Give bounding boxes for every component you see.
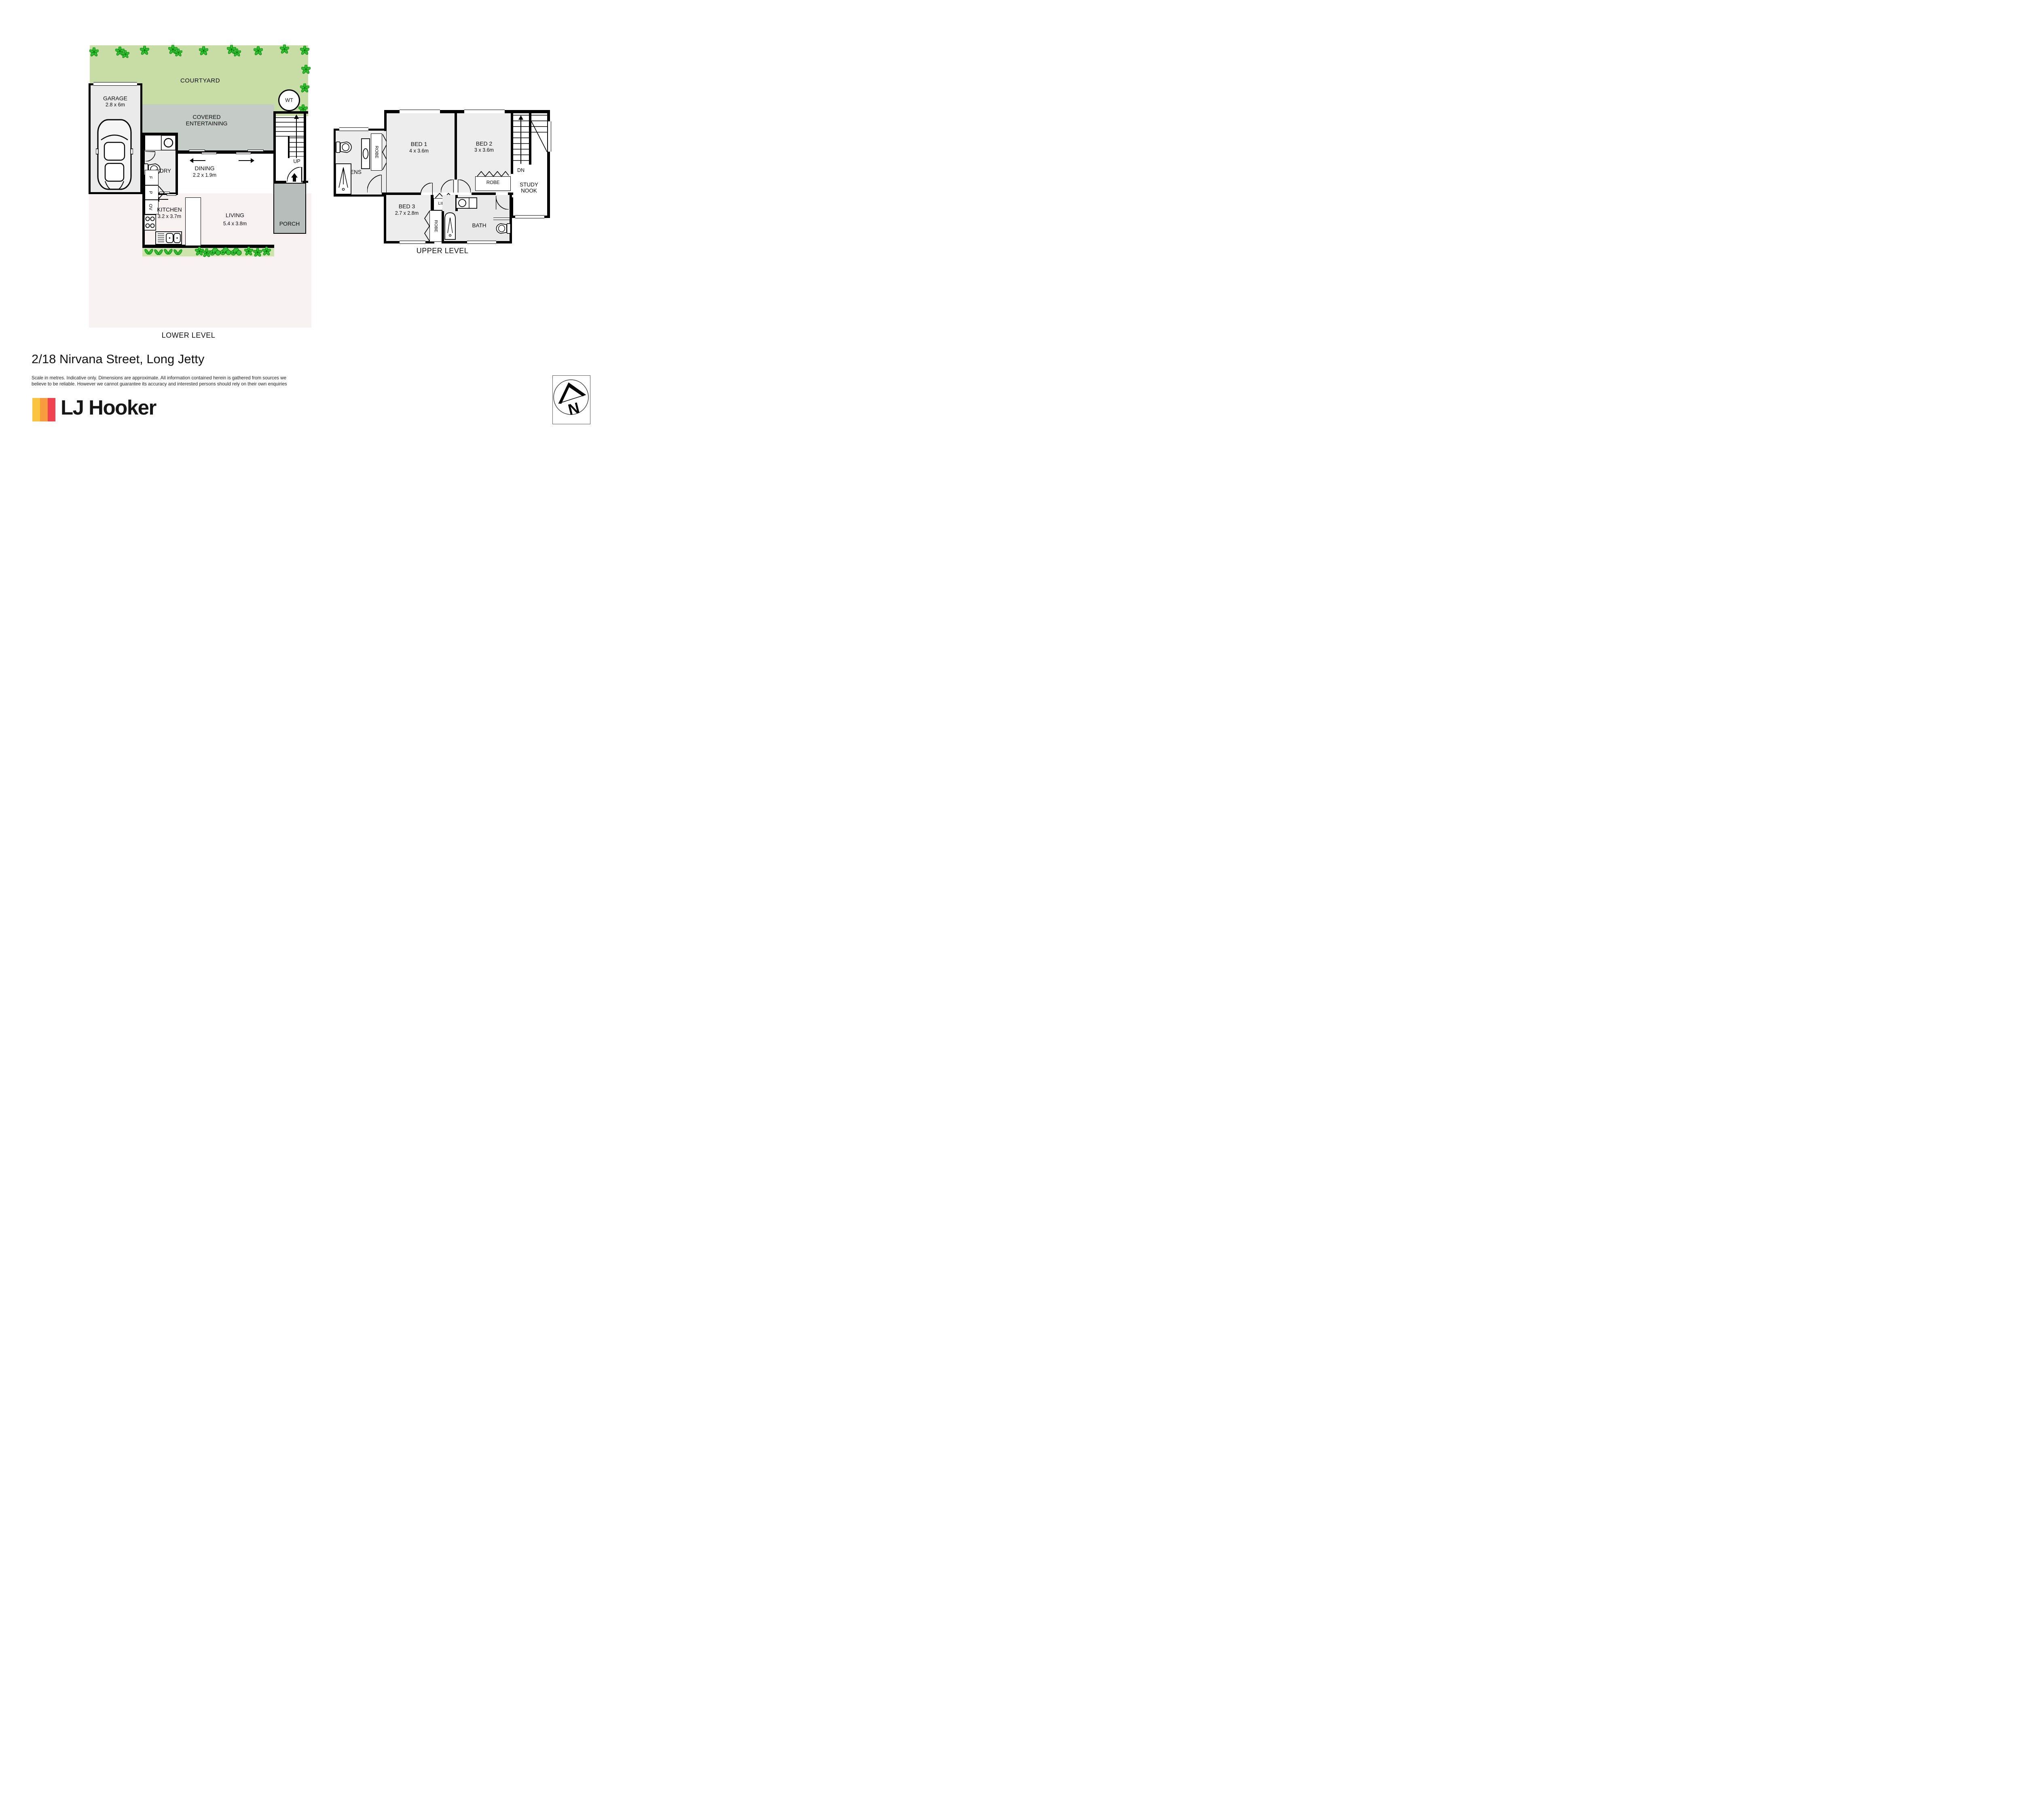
flower-icon: [254, 46, 263, 55]
stair-rail: [520, 116, 521, 164]
logo-stripe-red: [48, 398, 55, 421]
disclaimer-line1: Scale in metres. Indicative only. Dimens…: [32, 375, 286, 381]
stairs-down-label: DN: [517, 168, 525, 173]
robe-bed2-label: ROBE: [486, 180, 500, 185]
window: [515, 215, 544, 218]
floor-plan-upper: ENS ROBE BED 1 4 x 3.6m BED 2: [0, 0, 251, 283]
bed1-dims: 4 x 3.6m: [409, 148, 429, 154]
stairs-up-arrow-icon: [294, 114, 299, 119]
robe-bed3-label: ROBE: [434, 220, 438, 232]
stairs-diagonal: [531, 120, 547, 152]
door-arc: [421, 183, 433, 195]
stairs-up-label: UP: [293, 159, 300, 164]
bed1-label: BED 1: [411, 141, 427, 147]
study-label-1: STUDY: [520, 182, 538, 188]
door-arc: [367, 175, 382, 193]
upper-level-title: UPPER LEVEL: [417, 247, 469, 255]
brand-name: LJ Hooker: [61, 396, 156, 419]
window: [400, 241, 425, 244]
ensuite-label: ENS: [350, 169, 362, 175]
door-arc: [441, 180, 454, 193]
disclaimer-line2: believe to be reliable. However we canno…: [32, 381, 287, 387]
bath-vanity-icon: [456, 197, 477, 209]
north-arrow-icon: N: [553, 376, 590, 423]
stair-divider: [288, 136, 290, 158]
flower-icon: [253, 248, 262, 257]
flower-icon: [300, 83, 309, 93]
wall: [384, 195, 386, 243]
logo-stripe-orange: [40, 398, 48, 421]
wall: [431, 195, 434, 210]
wall: [273, 111, 308, 114]
logo-stripe-yellow: [32, 398, 40, 421]
wall: [510, 195, 512, 243]
flower-icon: [301, 65, 311, 74]
robe-bed1-label: ROBE: [374, 146, 379, 158]
bed3-label: BED 3: [399, 203, 415, 210]
window: [339, 127, 368, 131]
lower-level-title: LOWER LEVEL: [162, 332, 216, 339]
brand-logo: LJ Hooker: [32, 396, 235, 423]
flower-icon: [262, 247, 271, 256]
toilet-icon: [335, 141, 353, 154]
stair-rail: [296, 115, 297, 158]
wall: [455, 110, 457, 180]
study-label-2: NOOK: [521, 188, 537, 194]
door-arc: [458, 180, 471, 193]
north-compass: N: [552, 375, 590, 424]
entry-arrow-icon: [290, 173, 298, 182]
bifold-doors: [424, 211, 430, 241]
stairs-up-treads: [276, 117, 304, 138]
bed2-dims: 3 x 3.6m: [474, 148, 494, 153]
vanity-icon: [361, 138, 370, 169]
door-arc: [496, 196, 509, 210]
bathtub-icon: [444, 212, 456, 240]
bifold-doors: [477, 171, 509, 177]
water-tank: WT: [278, 89, 300, 111]
window: [467, 241, 496, 244]
window: [548, 121, 551, 152]
bed3-dims: 2.7 x 2.8m: [395, 211, 419, 216]
floorplan-page: COURTYARD COVERED ENTERTAINING WT GARAGE…: [0, 0, 625, 442]
address-title: 2/18 Nirvana Street, Long Jetty: [32, 352, 204, 366]
toilet-icon: [495, 222, 511, 235]
porch-label: PORCH: [279, 221, 300, 227]
bath-label: BATH: [472, 223, 486, 229]
flower-icon: [280, 44, 289, 54]
shower-icon: [335, 163, 351, 195]
bath-shelf: [493, 218, 510, 220]
wall: [304, 111, 306, 183]
stairs-down-arrow-icon: [518, 115, 523, 120]
bed2-label: BED 2: [476, 141, 492, 147]
flower-icon: [300, 46, 309, 55]
water-tank-label: WT: [285, 97, 293, 103]
